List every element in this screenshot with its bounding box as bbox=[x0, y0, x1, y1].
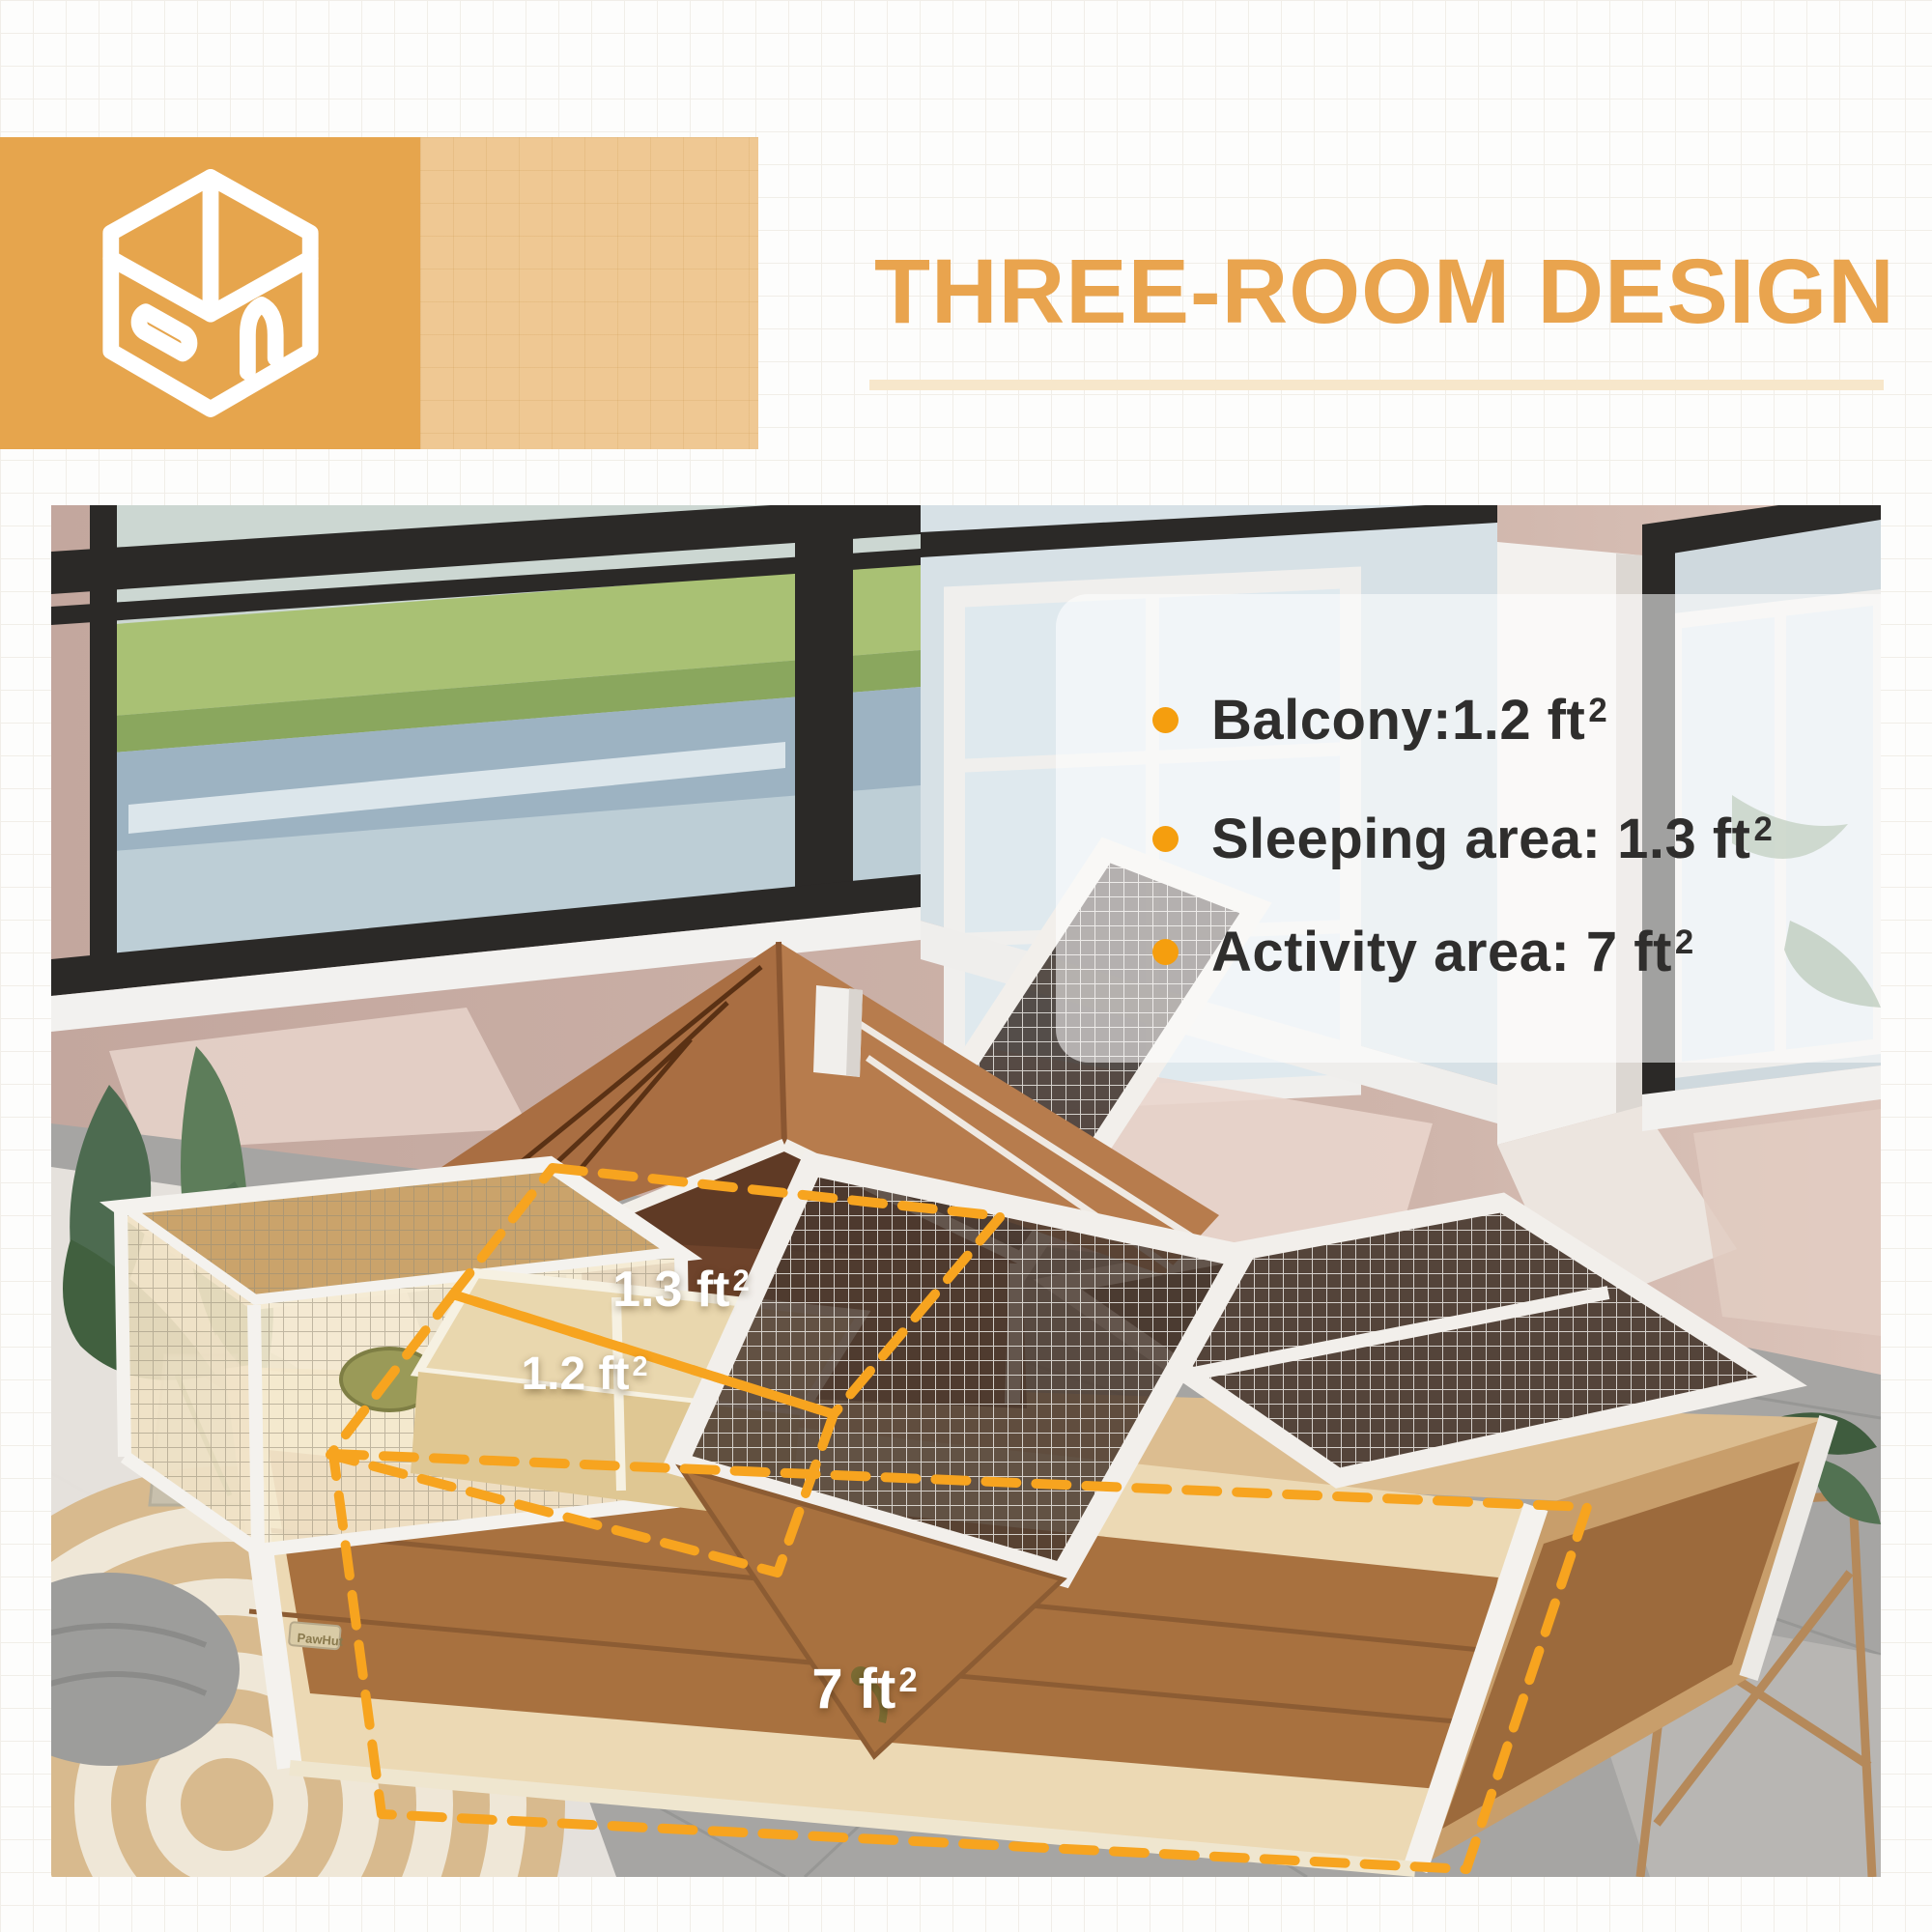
feature-info-panel: Balcony:1.2 ft2 Sleeping area: 1.3 ft2 A… bbox=[1056, 594, 1881, 1063]
feature-item-balcony: Balcony:1.2 ft2 bbox=[1152, 689, 1607, 751]
feature-text: Balcony:1.2 ft2 bbox=[1211, 688, 1607, 753]
brand-logo-block-light bbox=[420, 137, 758, 449]
product-photo: PawHut bbox=[51, 505, 1881, 1877]
activity-area-label: 7 ft2 bbox=[768, 1657, 961, 1721]
balcony-area-label: 1.2 ft2 bbox=[488, 1348, 681, 1401]
cube-house-logo-icon bbox=[95, 165, 327, 421]
marketing-page: THREE-ROOM DESIGN bbox=[0, 0, 1932, 1932]
feature-text: Sleeping area: 1.3 ft2 bbox=[1211, 807, 1773, 871]
feature-text: Activity area: 7 ft2 bbox=[1211, 920, 1694, 984]
brand-logo-block bbox=[0, 137, 420, 449]
feature-item-activity: Activity area: 7 ft2 bbox=[1152, 921, 1694, 982]
brand-tag: PawHut bbox=[289, 1622, 345, 1649]
page-title: THREE-ROOM DESIGN bbox=[874, 240, 1835, 345]
bullet-dot-icon bbox=[1152, 826, 1179, 852]
bullet-dot-icon bbox=[1152, 707, 1179, 733]
bullet-dot-icon bbox=[1152, 939, 1179, 965]
sleeping-area-label: 1.3 ft2 bbox=[584, 1261, 778, 1319]
title-underline bbox=[869, 380, 1884, 390]
feature-item-sleeping: Sleeping area: 1.3 ft2 bbox=[1152, 808, 1773, 869]
